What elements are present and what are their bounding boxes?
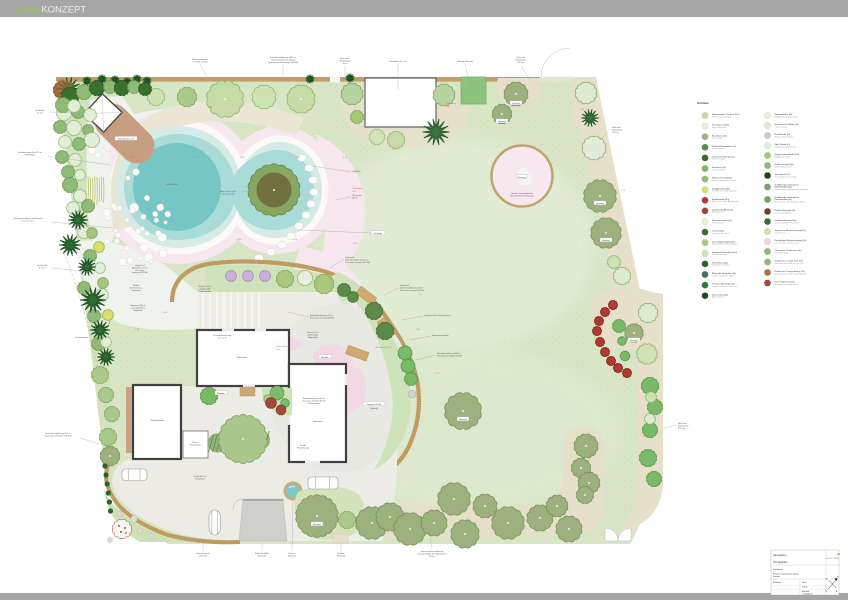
svg-text:Hamamelis mollis: Hamamelis mollis bbox=[775, 252, 789, 254]
svg-text:Bestand: Bestand bbox=[512, 102, 519, 105]
svg-text:Stauden: Stauden bbox=[321, 356, 328, 359]
svg-text:W: W bbox=[826, 579, 828, 581]
svg-text:Viburnum bodnantense 'Dawn': Viburnum bodnantense 'Dawn' bbox=[712, 179, 737, 182]
svg-text:Cornus florida 'Cherokee Chief: Cornus florida 'Cherokee Chief' bbox=[775, 242, 801, 244]
svg-text:Hamamelis intermedia 'Orange B: Hamamelis intermedia 'Orange Beauty' bbox=[775, 272, 807, 275]
svg-text:Terrasse 190 m²: Terrasse 190 m² bbox=[367, 403, 382, 406]
svg-text:Hamamelis intermedia 'Diane': Hamamelis intermedia 'Diane' bbox=[775, 283, 799, 286]
svg-text:Forsythia intermedia 'Lynwood': Forsythia intermedia 'Lynwood' bbox=[712, 190, 737, 193]
svg-text:Juniperus chinensis 'Pfitzeria: Juniperus chinensis 'Pfitzeriana' bbox=[712, 285, 738, 288]
svg-text:Malus 'Golden Hornet': Malus 'Golden Hornet' bbox=[775, 165, 793, 168]
svg-text:Syringa vulgaris 'Sensation': Syringa vulgaris 'Sensation' bbox=[775, 145, 798, 148]
svg-text:Berberis thunbergii 'Atropurpu: Berberis thunbergii 'Atropurpurea' bbox=[712, 200, 739, 203]
svg-text:gardoKONZEPT: gardoKONZEPT bbox=[17, 5, 86, 16]
svg-text:3,4k: 3,4k bbox=[446, 106, 450, 108]
svg-text:Holzdeck 32,2 m²: Holzdeck 32,2 m² bbox=[118, 137, 134, 140]
svg-text:Brunnen(Bestand): Brunnen(Bestand) bbox=[288, 553, 296, 557]
svg-text:Bodendeckerpflanzung 56,3 m²Vi: Bodendeckerpflanzung 56,3 m²Vinca minor,… bbox=[45, 432, 72, 437]
svg-text:Stauden Gemüsebeet mitNaturste: Stauden Gemüsebeet mitNatursteinmauerein… bbox=[510, 192, 533, 197]
svg-text:Terrasse 76,1 m²großformatigeP: Terrasse 76,1 m²großformatigePolygonalpl… bbox=[199, 285, 212, 293]
svg-text:Cornus kousa: Cornus kousa bbox=[775, 232, 786, 234]
svg-text:Bestand: Bestand bbox=[459, 418, 466, 421]
svg-text:Projekt: Projekt bbox=[802, 586, 808, 589]
svg-text:Ilex aquifolium 'J.C. van Tol': Ilex aquifolium 'J.C. van Tol' bbox=[775, 176, 798, 178]
svg-text:Corylus avellana: Corylus avellana bbox=[712, 169, 725, 171]
svg-text:Buddleja alternifolia: Buddleja alternifolia bbox=[775, 155, 791, 158]
svg-text:Cornus alba 'Sibirica': Cornus alba 'Sibirica' bbox=[775, 212, 792, 214]
svg-text:Bestand: Bestand bbox=[630, 339, 637, 342]
svg-text:Bestand: Bestand bbox=[596, 202, 603, 205]
svg-text:Amelanchier laevis: Amelanchier laevis bbox=[712, 253, 727, 256]
svg-text:Rhododendron yakushimanum 'Pol: Rhododendron yakushimanum 'Polaris' bbox=[775, 201, 807, 203]
svg-text:Konzeptplan: Konzeptplan bbox=[773, 560, 788, 564]
svg-text:Rhododendron yakushimanum 'Fan: Rhododendron yakushimanum 'Fantastica' bbox=[775, 188, 810, 191]
svg-text:1:100 (A4 m): 1:100 (A4 m) bbox=[802, 593, 813, 596]
svg-text:Findlinge: Findlinge bbox=[374, 233, 383, 235]
svg-text:Nebengebäude: Nebengebäude bbox=[151, 420, 164, 422]
svg-text:Acer japonicum: Acer japonicum bbox=[712, 211, 725, 214]
svg-text:Wohnhaus: Wohnhaus bbox=[313, 421, 324, 423]
svg-text:Deutzia scabra 'Plena': Deutzia scabra 'Plena' bbox=[712, 232, 730, 235]
svg-text:Festung: Festung bbox=[518, 176, 525, 179]
svg-text:Syringa vulgaris: Syringa vulgaris bbox=[775, 126, 788, 128]
svg-text:Natursteinmauerhöhle: Natursteinmauerhöhle bbox=[432, 334, 449, 337]
svg-text:Juniperus squamata 'Meyeri': Juniperus squamata 'Meyeri' bbox=[712, 274, 735, 277]
svg-text:Buddleja davidii 'Nanho Blue': Buddleja davidii 'Nanho Blue' bbox=[775, 116, 799, 118]
svg-text:Bestand: Bestand bbox=[313, 523, 320, 526]
svg-text:Trittblöcke: Trittblöcke bbox=[352, 170, 361, 173]
svg-text:Hamamelis intermedia 'Orange P: Hamamelis intermedia 'Orange Peel' bbox=[775, 262, 805, 265]
svg-text:Bodendeckerpflanzung 13,8 m²Vi: Bodendeckerpflanzung 13,8 m²Vinca minor,… bbox=[310, 314, 335, 319]
svg-text:Spirea cinerea 'Frosbeli': Spirea cinerea 'Frosbeli' bbox=[712, 116, 732, 118]
svg-text:Spirea Vanhouttei: Spirea Vanhouttei bbox=[712, 126, 727, 129]
svg-text:Hausgarten: Hausgarten bbox=[773, 553, 787, 557]
svg-text:Teich 226 m²: Teich 226 m² bbox=[166, 183, 178, 186]
svg-text:Weifang (Bestand): Weifang (Bestand) bbox=[457, 60, 473, 63]
svg-text:OK Welding: OK Welding bbox=[352, 188, 362, 190]
svg-text:Sambucus nigra: Sambucus nigra bbox=[712, 159, 725, 161]
svg-text:Gerätehaus 10 x 7 m: Gerätehaus 10 x 7 m bbox=[389, 60, 407, 63]
svg-text:Bestandsgrenze: Bestandsgrenze bbox=[76, 336, 89, 339]
svg-text:Weigela florida 'Nana Variegat: Weigela florida 'Nana Variegata' bbox=[712, 243, 738, 246]
svg-text:Dresden: Dresden bbox=[773, 575, 780, 578]
svg-text:3,4k: 3,4k bbox=[352, 191, 356, 193]
svg-text:kleine Insel D 5,5 mmit Trauer: kleine Insel D 5,5 mmit Trauerweide bbox=[220, 191, 236, 195]
svg-text:Gehölze: Gehölze bbox=[697, 101, 709, 105]
svg-text:3,46: 3,46 bbox=[276, 349, 280, 351]
svg-text:Wohnhaus: Wohnhaus bbox=[237, 357, 248, 359]
svg-text:Syringa meyeri 'Palibin': Syringa meyeri 'Palibin' bbox=[775, 136, 794, 138]
svg-text:Zufahrt 365,7 m²Granitpflaster: Zufahrt 365,7 m²Granitpflaster bbox=[193, 475, 207, 480]
svg-text:vorhandene Natursteinbogenmaue: vorhandene Natursteinbogenmauer bbox=[424, 314, 451, 317]
svg-text:Mülltonn(Bestand): Mülltonn(Bestand) bbox=[337, 552, 345, 557]
svg-text:Cornus stolonifera 'Flaviramea: Cornus stolonifera 'Flaviramea' bbox=[775, 221, 800, 224]
svg-text:Bearbeiter: Bearbeiter bbox=[773, 581, 782, 584]
svg-text:Terrasse 51,1 m²großformatigeF: Terrasse 51,1 m²großformatigeFliegerplat… bbox=[307, 331, 320, 339]
svg-text:Prunus spinosa: Prunus spinosa bbox=[712, 148, 724, 150]
svg-text:GARDOMAT: GARDOMAT bbox=[825, 557, 840, 560]
svg-text:Sciadopitys verticillata: Sciadopitys verticillata bbox=[712, 264, 730, 267]
svg-text:Name: Name bbox=[802, 582, 807, 584]
svg-text:Kerria japonica: Kerria japonica bbox=[712, 222, 724, 224]
svg-text:Bestand: Bestand bbox=[602, 239, 609, 242]
svg-text:Stauden: Stauden bbox=[217, 392, 224, 395]
svg-text:186 Terrasse 4,25: 186 Terrasse 4,25 bbox=[375, 347, 392, 349]
svg-text:Gardomat: Gardomat bbox=[773, 568, 783, 571]
svg-text:Bodendeckerpflanzung 43,6 m²Vi: Bodendeckerpflanzung 43,6 m²Vinca minor,… bbox=[437, 352, 463, 357]
svg-text:(Bestand): (Bestand) bbox=[370, 407, 378, 410]
svg-text:OK Welding: OK Welding bbox=[446, 103, 456, 105]
svg-text:Spirea arguta: Spirea arguta bbox=[712, 137, 723, 140]
svg-text:Abies koreana: Abies koreana bbox=[712, 296, 724, 299]
svg-text:Natursteinbrunnenca. 913,8 - 0: Natursteinbrunnenca. 913,8 - 0,93 m bbox=[192, 58, 208, 63]
svg-text:Bestand: Bestand bbox=[498, 120, 505, 123]
svg-text:28 Fensterbrett: 28 Fensterbrett bbox=[276, 345, 289, 348]
svg-text:Bodendeckerpflanzung 160,0 m²C: Bodendeckerpflanzung 160,0 m²Cotoneaster… bbox=[268, 56, 299, 64]
